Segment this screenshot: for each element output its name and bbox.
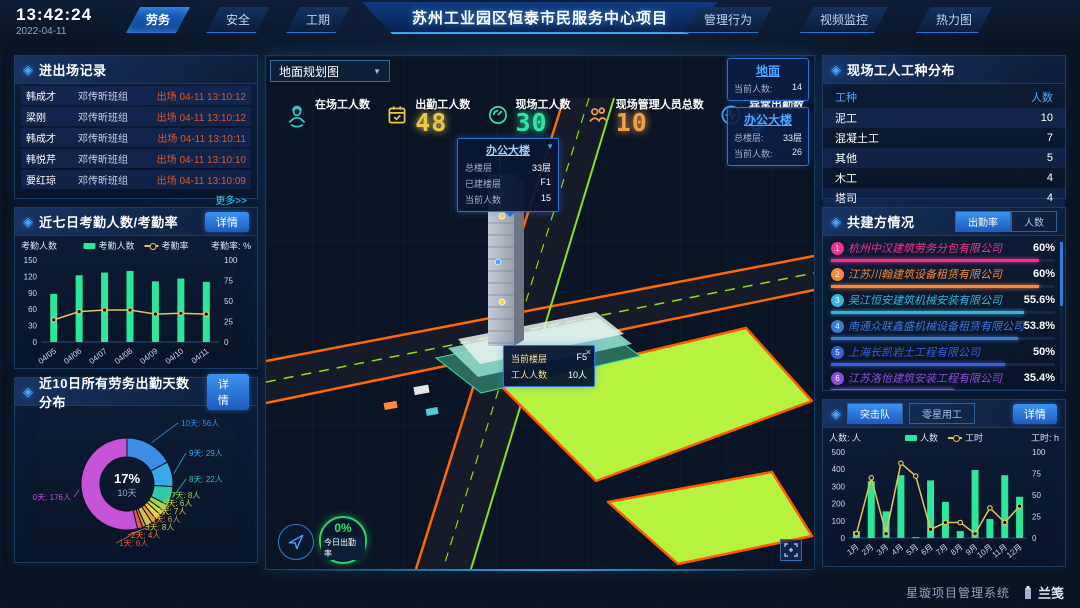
svg-text:150: 150 (24, 256, 38, 265)
svg-text:1月: 1月 (845, 542, 860, 557)
svg-text:100: 100 (832, 517, 846, 526)
exit-time: 出场 04-11 13:10:12 (136, 88, 246, 103)
svg-text:500: 500 (832, 448, 846, 457)
calendar-check-icon (384, 102, 410, 128)
gauge-value: 0% (334, 521, 351, 535)
logo-text: 兰笺 (1038, 583, 1064, 602)
svg-text:50: 50 (224, 297, 233, 306)
distribution-header: ◈ 近10日所有劳务出勤天数分布 详情 (15, 378, 257, 406)
svg-text:12月: 12月 (1005, 542, 1024, 560)
chevron-down-icon: ▼ (373, 67, 381, 76)
site-3d-map[interactable]: 地面规划图 ▼ 在场工人数 出勤工人数 48 现场工人数 30 (265, 55, 815, 570)
svg-text:25: 25 (224, 318, 233, 327)
rank-badge: 5 (831, 346, 844, 359)
tab-attendance-rate[interactable]: 出勤率 (955, 211, 1011, 232)
legend-item: 人数 (905, 431, 938, 444)
svg-text:0: 0 (33, 338, 38, 347)
scrollbar-thumb[interactable] (1060, 242, 1063, 306)
badge-row: 总楼层:33层 (734, 131, 802, 144)
attendance-title: 近七日考勤人数/考勤率 (39, 212, 178, 231)
progress-fill (831, 285, 1039, 288)
exit-time: 出场 04-11 13:10:12 (136, 109, 246, 124)
diamond-icon: ◈ (23, 385, 33, 398)
tab-management-behavior[interactable]: 管理行为 (684, 7, 772, 33)
contractors-title: 共建方情况 (847, 212, 915, 231)
company-value: 35.4% (1024, 372, 1055, 384)
tab-assault-team[interactable]: 突击队 (847, 403, 903, 424)
svg-text:8天: 22人: 8天: 22人 (189, 475, 223, 484)
teams-panel: ◈ 突击队 零星用工 详情 人数: 人 人数 工时 工时: h 01002003… (822, 399, 1066, 567)
compass-button[interactable] (278, 524, 314, 560)
tab-schedule[interactable]: 工期 (286, 7, 350, 33)
svg-text:100: 100 (1032, 448, 1046, 457)
building-tooltip-title[interactable]: 办公大楼 (465, 142, 551, 158)
table-row: 梁刚 邓传昕班组 出场 04-11 13:10:12 (21, 107, 251, 126)
attendance-header: ◈ 近七日考勤人数/考勤率 详情 (15, 208, 257, 236)
rank-badge: 2 (831, 268, 844, 281)
exit-time: 出场 04-11 13:10:10 (136, 151, 246, 166)
svg-text:9天: 29人: 9天: 29人 (189, 449, 223, 458)
svg-text:0: 0 (841, 534, 846, 543)
tooltip-row: 当前人数15 (465, 193, 551, 206)
svg-text:04/08: 04/08 (113, 346, 135, 366)
svg-text:50: 50 (1032, 491, 1041, 500)
entry-exit-header: ◈ 进出场记录 (15, 56, 257, 84)
diamond-icon: ◈ (23, 63, 33, 76)
navigation-icon (286, 532, 306, 552)
attendance-bar-line-chart: 0306090120150025507510004/0504/0604/0704… (15, 252, 247, 366)
table-row: 其他5 (823, 148, 1065, 168)
line-swatch-icon (145, 245, 159, 247)
stat-value: 10 (616, 112, 704, 134)
gauge-icon (485, 102, 511, 128)
tab-video-monitor[interactable]: 视频监控 (800, 7, 888, 33)
worker-name: 要红琼 (26, 172, 78, 187)
contractors-panel: ◈ 共建方情况 出勤率 人数 1 杭州中汉建筑劳务分包有限公司 60% 2 江苏… (822, 207, 1066, 391)
svg-text:30: 30 (28, 322, 37, 331)
stat-item: 现场工人数 30 (485, 96, 571, 134)
logo-icon (1022, 586, 1034, 600)
table-row: 塔司4 (823, 188, 1065, 208)
teams-legend: 人数 工时 (905, 431, 983, 444)
attendance-axis-captions: 考勤人数 考勤人数 考勤率 考勤率: % (15, 236, 257, 252)
diamond-icon: ◈ (831, 407, 841, 420)
progress-fill (831, 311, 1024, 314)
list-item[interactable]: 5 上海长凯岩土工程有限公司 50% (831, 344, 1055, 366)
tab-heatmap[interactable]: 热力图 (916, 7, 992, 33)
table-row: 韩成才 邓传昕班组 出场 04-11 13:10:11 (21, 128, 251, 147)
right-axis-caption: 考勤率: % (211, 239, 251, 252)
stat-item: 出勤工人数 48 (384, 96, 470, 134)
map-badges: 地面 当前人数:14 办公大楼 总楼层:33层 当前人数:26 (727, 58, 809, 172)
tab-casual-labor[interactable]: 零星用工 (909, 403, 975, 424)
svg-text:10天: 56人: 10天: 56人 (181, 419, 219, 428)
fullscreen-expand-icon[interactable] (780, 539, 802, 561)
table-row: 泥工10 (823, 108, 1065, 128)
gauge-label: 今日出勤率 (321, 536, 365, 560)
list-item[interactable]: 1 杭州中汉建筑劳务分包有限公司 60% (831, 240, 1055, 262)
company-value: 50% (1033, 346, 1055, 358)
brand-logo: 兰笺 (1022, 583, 1064, 602)
svg-text:04/05: 04/05 (37, 346, 59, 366)
list-item[interactable]: 3 吴江恒安建筑机械安装有限公司 55.6% (831, 292, 1055, 314)
worker-name: 韩成才 (26, 88, 78, 103)
line-swatch-icon (948, 437, 962, 439)
company-value: 60% (1033, 268, 1055, 280)
people-icon (585, 102, 611, 128)
svg-text:0: 0 (1032, 534, 1037, 543)
table-row: 韩成才 邓传昕班组 出场 04-11 13:10:12 (21, 86, 251, 105)
svg-text:1天: 6人: 1天: 6人 (119, 539, 148, 548)
progress-fill (831, 363, 1005, 366)
distribution-donut-chart: 10天: 56人9天: 29人8天: 22人7天: 8人6天: 6人5天: 7人… (15, 406, 247, 560)
list-item[interactable]: 6 江苏洛怡建筑安装工程有限公司 35.4% (831, 370, 1055, 391)
rank-badge: 4 (831, 320, 844, 333)
tooltip-row: 当前楼层F5 (511, 352, 587, 365)
tab-labor[interactable]: 劳务 (126, 7, 190, 33)
svg-text:04/09: 04/09 (138, 346, 160, 366)
ground-badge[interactable]: 地面 当前人数:14 (727, 58, 809, 101)
diamond-icon: ◈ (831, 63, 841, 76)
svg-text:4月: 4月 (890, 542, 905, 557)
svg-text:0天: 176人: 0天: 176人 (33, 493, 71, 502)
legend-item: 工时 (948, 431, 983, 444)
scrollbar[interactable] (1060, 242, 1063, 384)
svg-text:17%: 17% (114, 471, 140, 486)
svg-text:10天: 10天 (117, 488, 136, 498)
team-name: 邓传昕班组 (78, 172, 136, 187)
svg-text:3月: 3月 (875, 542, 890, 557)
table-row: 木工4 (823, 168, 1065, 188)
teams-header: ◈ 突击队 零星用工 详情 (823, 400, 1065, 428)
team-name: 邓传昕班组 (78, 151, 136, 166)
filter-flag-icon: ▼ (546, 142, 554, 151)
tooltip-row: 总楼层33层 (465, 161, 551, 174)
badge-row: 当前人数:14 (734, 82, 802, 95)
bar-swatch-icon (905, 435, 917, 441)
distribution-detail-button[interactable]: 详情 (207, 374, 249, 410)
list-item[interactable]: 2 江苏川翰建筑设备租赁有限公司 60% (831, 266, 1055, 288)
bar-swatch-icon (83, 243, 95, 249)
office-building-badge[interactable]: 办公大楼 总楼层:33层 当前人数:26 (727, 107, 809, 166)
svg-text:04/11: 04/11 (190, 346, 211, 365)
badge-title: 办公大楼 (734, 111, 802, 128)
company-name: 杭州中汉建筑劳务分包有限公司 (848, 240, 1033, 256)
progress-track (831, 363, 1055, 366)
progress-fill (831, 337, 1018, 340)
svg-text:7月: 7月 (934, 542, 949, 557)
legend-item: 考勤率 (145, 239, 189, 252)
stat-item: 现场管理人员总数 10 (585, 96, 704, 134)
table-row: 要红琼 邓传昕班组 出场 04-11 13:10:09 (21, 170, 251, 189)
svg-text:400: 400 (832, 465, 846, 474)
contractors-header: ◈ 共建方情况 出勤率 人数 (823, 208, 1065, 236)
distribution-panel: ◈ 近10日所有劳务出勤天数分布 详情 10天: 56人9天: 29人8天: 2… (14, 377, 258, 563)
svg-text:60: 60 (28, 305, 37, 314)
entry-exit-title: 进出场记录 (39, 60, 107, 79)
diamond-icon: ◈ (23, 215, 33, 228)
teams-axis-captions: 人数: 人 人数 工时 工时: h (823, 428, 1065, 444)
svg-text:04/10: 04/10 (164, 346, 186, 366)
progress-fill (831, 259, 1039, 262)
progress-fill (831, 389, 954, 391)
exit-time: 出场 04-11 13:10:11 (136, 130, 246, 145)
attendance-legend: 考勤人数 考勤率 (83, 239, 188, 252)
svg-text:04/06: 04/06 (62, 346, 84, 366)
progress-track (831, 311, 1055, 314)
tooltip-row: 工人人数10人 (511, 368, 587, 381)
svg-text:90: 90 (28, 289, 37, 298)
legend-item: 考勤人数 (83, 239, 134, 252)
company-value: 55.6% (1024, 294, 1055, 306)
more-link[interactable]: 更多>> (25, 192, 247, 207)
rank-badge: 6 (831, 372, 844, 385)
distribution-title: 近10日所有劳务出勤天数分布 (39, 373, 201, 411)
company-name: 吴江恒安建筑机械安装有限公司 (848, 292, 1024, 308)
worker-name: 梁刚 (26, 109, 78, 124)
team-name: 邓传昕班组 (78, 109, 136, 124)
teams-detail-button[interactable]: 详情 (1013, 404, 1057, 424)
left-axis-caption: 人数: 人 (829, 431, 861, 444)
company-value: 60% (1033, 242, 1055, 254)
clock: 13:42:24 2022-04-11 (16, 5, 92, 37)
worker-types-list: 泥工10 混凝土工7 其他5 木工4 塔司4 (823, 108, 1065, 208)
attendance-detail-button[interactable]: 详情 (205, 212, 249, 232)
system-name: 星璇项目管理系统 (906, 584, 1010, 601)
diamond-icon: ◈ (831, 215, 841, 228)
tooltip-row: 已建楼层F1 (465, 177, 551, 190)
svg-text:5月: 5月 (905, 542, 920, 557)
rank-badge: 1 (831, 242, 844, 255)
worker-types-column-headers: 工种人数 (823, 84, 1065, 108)
exit-time: 出场 04-11 13:10:09 (136, 172, 246, 187)
table-row: 混凝土工7 (823, 128, 1065, 148)
close-icon[interactable]: × (586, 347, 591, 357)
progress-track (831, 389, 1055, 391)
badge-title: 地面 (734, 62, 802, 79)
contractors-tabs: 出勤率 人数 (955, 211, 1057, 232)
svg-text:8月: 8月 (949, 542, 964, 557)
company-name: 江苏洛怡建筑安装工程有限公司 (848, 370, 1024, 386)
building-tooltip: 办公大楼 ▼ 总楼层33层 已建楼层F1 当前人数15 (457, 138, 559, 212)
svg-text:2月: 2月 (860, 542, 875, 557)
progress-track (831, 285, 1055, 288)
stats-row: 在场工人数 出勤工人数 48 现场工人数 30 现场管理人员总数 10 (284, 86, 804, 144)
top-bar: 13:42:24 2022-04-11 劳务 安全 工期 苏州工业园区恒泰市民服… (0, 0, 1080, 44)
svg-text:100: 100 (224, 256, 238, 265)
worker-types-header: ◈ 现场工人工种分布 (823, 56, 1065, 84)
list-item[interactable]: 4 南通众联鑫盛机械设备租赁有限公司 53.8% (831, 318, 1055, 340)
worker-types-panel: ◈ 现场工人工种分布 工种人数 泥工10 混凝土工7 其他5 木工4 塔司4 (822, 55, 1066, 199)
stat-value (315, 112, 370, 134)
company-value: 53.8% (1024, 320, 1055, 332)
worker-name: 韩悦芹 (26, 151, 78, 166)
worker-icon (284, 102, 310, 128)
badge-row: 当前人数:26 (734, 147, 802, 160)
entry-exit-panel: ◈ 进出场记录 韩成才 邓传昕班组 出场 04-11 13:10:12 梁刚 邓… (14, 55, 258, 199)
stat-value: 30 (516, 112, 571, 134)
stat-item: 在场工人数 (284, 96, 370, 134)
table-row: 韩悦芹 邓传昕班组 出场 04-11 13:10:10 (21, 149, 251, 168)
company-name: 江苏川翰建筑设备租赁有限公司 (848, 266, 1033, 282)
svg-text:120: 120 (24, 272, 38, 281)
tab-headcount[interactable]: 人数 (1011, 211, 1057, 232)
right-axis-caption: 工时: h (1031, 431, 1059, 444)
teams-bar-line-chart: 010020030040050002550751001月2月3月4月5月6月7月… (823, 444, 1055, 562)
attendance-rate-gauge: 0% 今日出勤率 (319, 516, 367, 564)
title-banner: 苏州工业园区恒泰市民服务中心项目 (362, 2, 718, 34)
company-name: 南通众联鑫盛机械设备租赁有限公司 (848, 318, 1024, 334)
page-title: 苏州工业园区恒泰市民服务中心项目 (412, 7, 668, 28)
progress-track (831, 337, 1055, 340)
svg-text:200: 200 (832, 500, 846, 509)
svg-text:04/07: 04/07 (87, 346, 109, 366)
svg-text:300: 300 (832, 482, 846, 491)
company-name: 上海长凯岩土工程有限公司 (848, 344, 1033, 360)
attendance-chart-panel: ◈ 近七日考勤人数/考勤率 详情 考勤人数 考勤人数 考勤率 考勤率: % 03… (14, 207, 258, 369)
svg-text:0: 0 (224, 338, 229, 347)
stat-value: 48 (415, 112, 470, 134)
svg-text:75: 75 (224, 277, 233, 286)
svg-text:75: 75 (1032, 470, 1041, 479)
tab-safety[interactable]: 安全 (206, 7, 270, 33)
stat-label: 在场工人数 (315, 96, 370, 112)
nav-tabs-left: 劳务 安全 工期 (126, 7, 350, 33)
worker-types-title: 现场工人工种分布 (847, 60, 955, 79)
team-name: 邓传昕班组 (78, 130, 136, 145)
worker-name: 韩成才 (26, 130, 78, 145)
clock-date: 2022-04-11 (16, 26, 92, 37)
team-name: 邓传昕班组 (78, 88, 136, 103)
progress-track (831, 259, 1055, 262)
svg-text:6月: 6月 (919, 542, 934, 557)
contractors-list: 1 杭州中汉建筑劳务分包有限公司 60% 2 江苏川翰建筑设备租赁有限公司 60… (823, 240, 1065, 391)
floor-tooltip: × 当前楼层F5 工人人数10人 (503, 345, 595, 387)
nav-tabs-right: 管理行为 视频监控 热力图 (684, 7, 992, 33)
rank-badge: 3 (831, 294, 844, 307)
footer: 星璇项目管理系统 兰笺 (906, 583, 1064, 602)
entry-exit-list: 韩成才 邓传昕班组 出场 04-11 13:10:12 梁刚 邓传昕班组 出场 … (15, 86, 257, 189)
svg-text:25: 25 (1032, 513, 1041, 522)
left-axis-caption: 考勤人数 (21, 239, 57, 252)
map-layer-select[interactable]: 地面规划图 ▼ (270, 60, 390, 82)
layer-select-value: 地面规划图 (279, 63, 339, 80)
clock-time: 13:42:24 (16, 5, 92, 25)
